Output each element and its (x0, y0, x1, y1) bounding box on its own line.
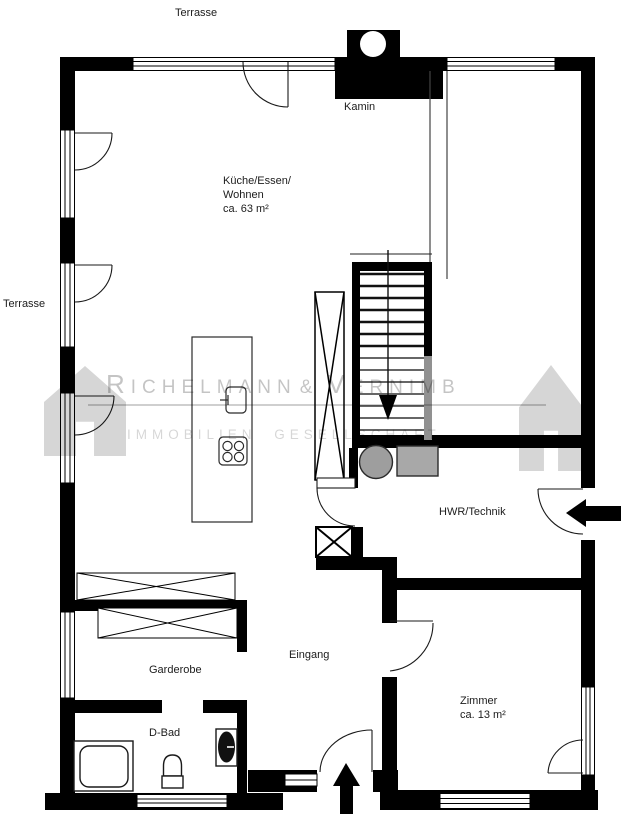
zimmer-door (390, 621, 433, 671)
closet-upper (77, 573, 235, 600)
room-label-eingang: Eingang (289, 648, 329, 662)
window-dbad (137, 795, 227, 808)
cooktop (219, 437, 247, 465)
terrace-door-2-swing (75, 265, 112, 302)
stair-down-arrow-icon (379, 395, 397, 420)
zimmer-line2: ca. 13 m² (460, 709, 506, 721)
kueche-line3: ca. 63 m² (223, 203, 269, 215)
window-zimmer-bottom (440, 794, 530, 809)
kueche-line2: Wohnen (223, 189, 264, 201)
small-shaft-box (316, 527, 352, 557)
terrace-door-1-swing (75, 133, 112, 170)
washing-machine (360, 446, 393, 479)
hall-door (317, 478, 355, 526)
washbasin (216, 729, 237, 766)
zimmer-balcony-door (548, 740, 583, 773)
room-label-kueche: Küche/Essen/Wohnenca. 63 m² (223, 174, 291, 216)
entrance-sidelight (285, 774, 317, 786)
toilet (162, 755, 183, 788)
closet-lower (98, 608, 237, 638)
entrance-arrows (333, 499, 621, 814)
kueche-line1: Küche/Essen/ (223, 175, 291, 187)
zimmer-line1: Zimmer (460, 695, 497, 707)
shower (74, 741, 133, 791)
kitchen-island (192, 337, 252, 522)
staircase (350, 250, 432, 440)
terrace-door-left-2 (61, 263, 75, 347)
floor-plan-canvas: Terrasse Kamin Küche/Essen/Wohnenca. 63 … (0, 0, 623, 830)
floor-plan-drawing (0, 0, 623, 830)
window-garderobe (61, 612, 75, 698)
window-top-left (133, 58, 335, 71)
room-label-terrasse-left: Terrasse (3, 297, 45, 311)
terrace-door-3-swing (75, 396, 114, 435)
hwr-appliances (360, 446, 439, 479)
room-label-zimmer: Zimmerca. 13 m² (460, 694, 506, 722)
room-label-kamin: Kamin (344, 100, 375, 114)
terrace-door-left-3 (61, 393, 75, 483)
window-top-right (447, 58, 555, 71)
chimney-flue-circle (360, 31, 386, 57)
room-label-garderobe: Garderobe (149, 663, 202, 677)
stair-lower-flight-shadow (424, 356, 432, 440)
room-label-dbad: D-Bad (149, 726, 180, 740)
window-zimmer-right (582, 687, 595, 775)
tall-shaft-box (315, 292, 344, 480)
gallery-edge-lines (430, 71, 447, 279)
room-label-terrasse-top: Terrasse (175, 6, 217, 20)
room-label-hwr: HWR/Technik (439, 505, 506, 519)
kamin-chimney (335, 30, 443, 99)
technik-unit (397, 446, 438, 476)
terrace-door-left-1 (61, 130, 75, 218)
